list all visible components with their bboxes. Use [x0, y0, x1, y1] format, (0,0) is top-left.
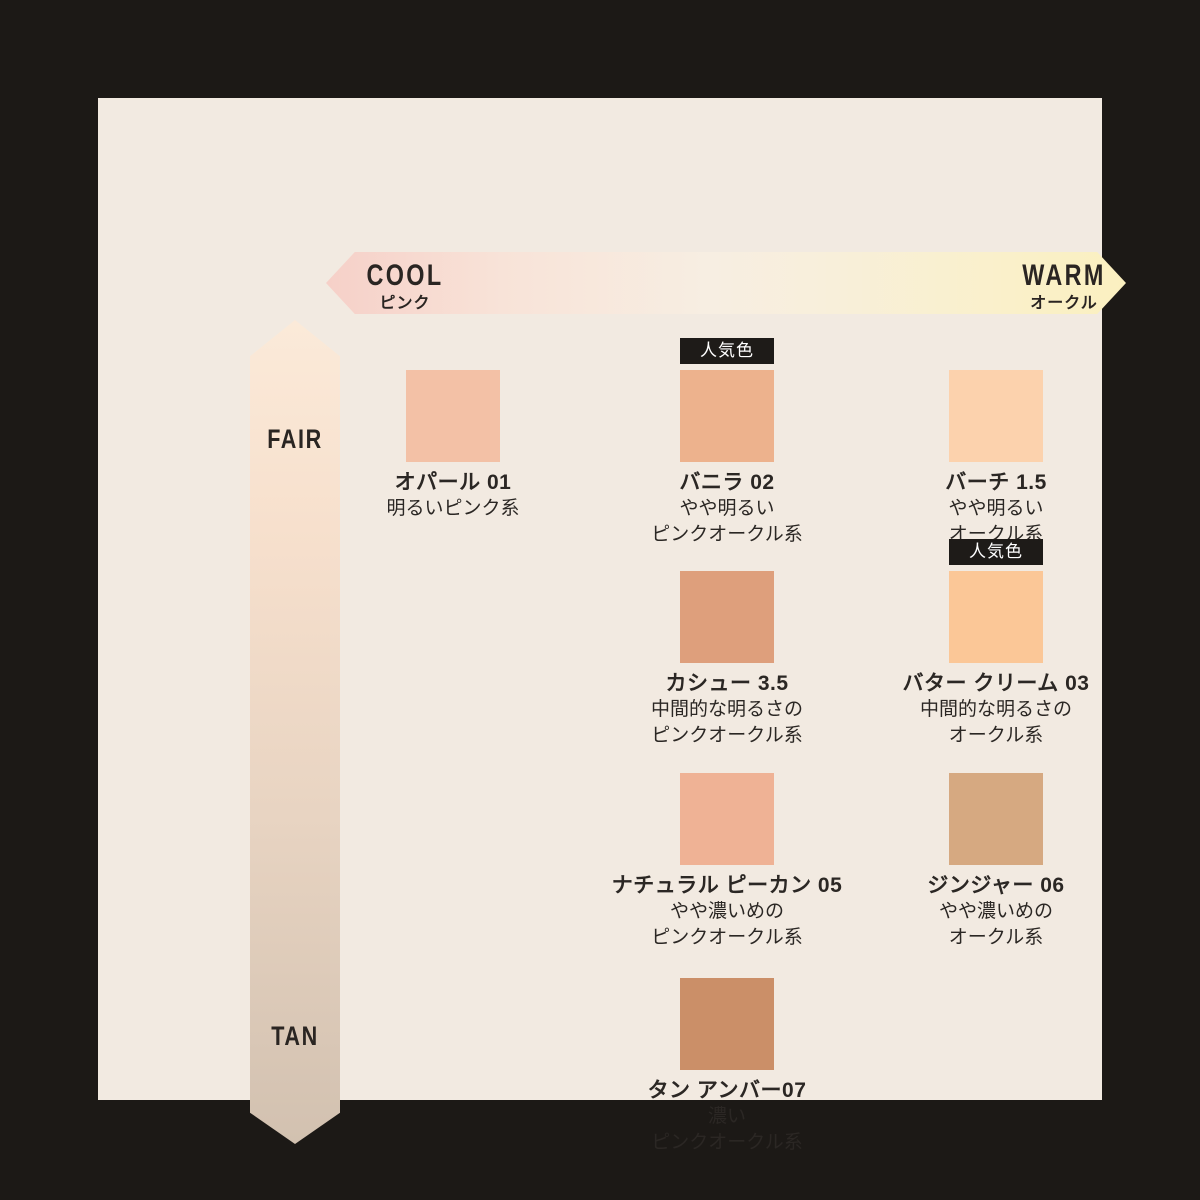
cool-sublabel: ピンク: [325, 294, 485, 314]
shade-swatch: [949, 571, 1043, 663]
shade-name: カシュー 3.5: [597, 671, 857, 697]
warm-sublabel: オークル: [984, 294, 1144, 314]
tan-label: TAN: [243, 1021, 347, 1052]
shade-desc-line: 中間的な明るさの: [597, 697, 857, 723]
fair-label: FAIR: [243, 424, 347, 455]
cool-axis-label: COOL ピンク: [325, 261, 485, 314]
shade-desc-line: ピンクオークル系: [597, 723, 857, 749]
shade-name: オパール 01: [323, 470, 583, 496]
popular-color-badge: 人気色: [949, 539, 1043, 565]
shade-desc-line: やや明るい: [597, 496, 857, 522]
shade-desc-line: 明るいピンク系: [323, 496, 583, 522]
shade-name: ナチュラル ピーカン 05: [597, 873, 857, 899]
warm-label: WARM: [1002, 261, 1127, 291]
shade-name: バーチ 1.5: [866, 470, 1126, 496]
shade-swatch: [680, 370, 774, 462]
shade-desc-line: やや濃いめの: [866, 899, 1126, 925]
shade-desc-line: ピンクオークル系: [597, 522, 857, 548]
shade-desc-line: ピンクオークル系: [597, 925, 857, 951]
shade-desc-line: 中間的な明るさの: [866, 697, 1126, 723]
shade-desc-line: ピンクオークル系: [597, 1130, 857, 1156]
shade-name: タン アンバー07: [597, 1078, 857, 1104]
shade-desc-line: オークル系: [866, 723, 1126, 749]
warm-axis-label: WARM オークル: [984, 261, 1144, 314]
chart-panel: COOL ピンク WARM オークル FAIR TAN オパール 01 明るいピ…: [98, 98, 1102, 1100]
shade-chart-image: COOL ピンク WARM オークル FAIR TAN オパール 01 明るいピ…: [0, 0, 1200, 1200]
popular-color-badge: 人気色: [680, 338, 774, 364]
shade-swatch: [680, 773, 774, 865]
shade-swatch: [680, 978, 774, 1070]
shade-name: ジンジャー 06: [866, 873, 1126, 899]
shade-desc-line: 濃い: [597, 1104, 857, 1130]
cool-label: COOL: [343, 261, 468, 291]
shade-name: バニラ 02: [597, 470, 857, 496]
shade-desc-line: やや明るい: [866, 496, 1126, 522]
shade-swatch: [406, 370, 500, 462]
shade-swatch: [949, 773, 1043, 865]
shade-name: バター クリーム 03: [866, 671, 1126, 697]
shade-desc-line: やや濃いめの: [597, 899, 857, 925]
shade-swatch: [949, 370, 1043, 462]
shade-swatch: [680, 571, 774, 663]
shade-desc-line: オークル系: [866, 925, 1126, 951]
